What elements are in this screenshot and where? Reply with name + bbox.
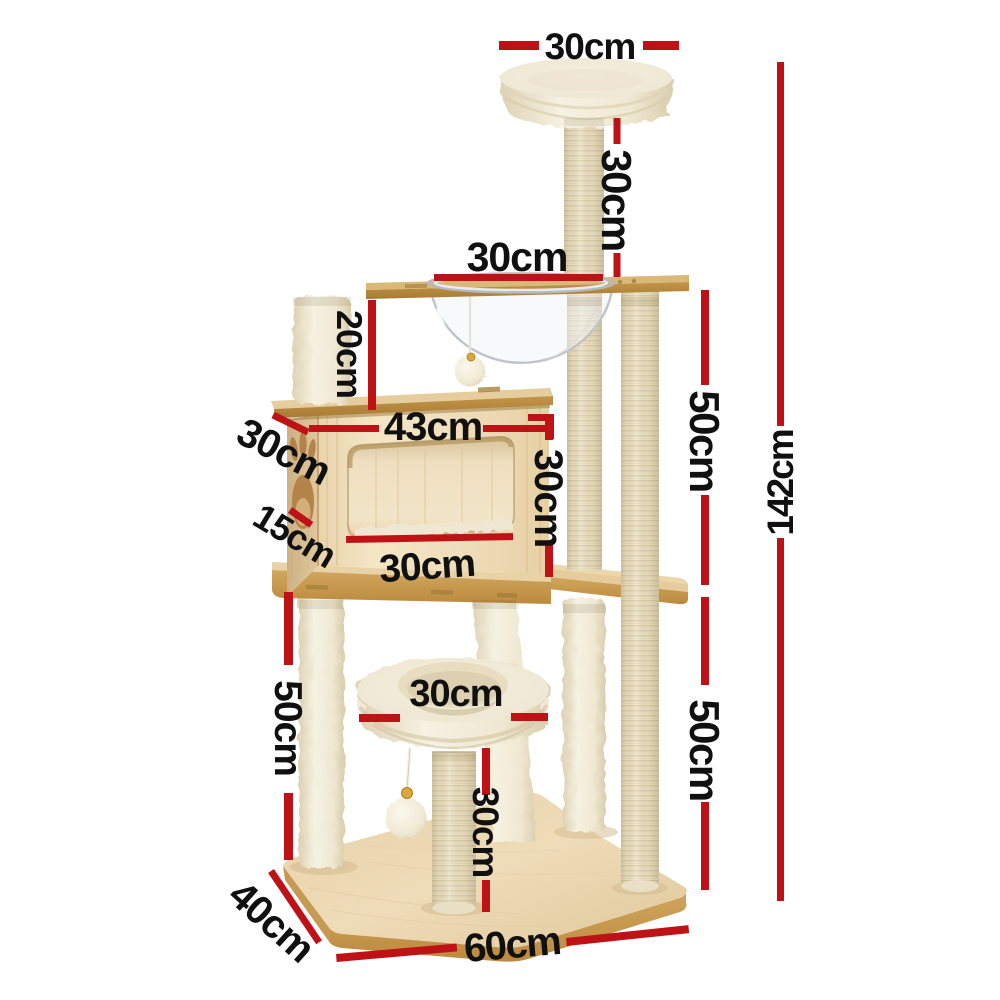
svg-text:142cm: 142cm	[760, 430, 801, 535]
svg-text:30cm: 30cm	[378, 542, 477, 592]
svg-text:30cm: 30cm	[593, 149, 640, 250]
svg-text:43cm: 43cm	[384, 405, 482, 449]
svg-text:30cm: 30cm	[409, 673, 502, 715]
svg-text:50cm: 50cm	[681, 390, 728, 491]
svg-text:20cm: 20cm	[329, 310, 370, 398]
svg-text:30cm: 30cm	[526, 449, 570, 547]
svg-text:30cm: 30cm	[465, 787, 506, 878]
svg-text:50cm: 50cm	[681, 699, 728, 800]
svg-text:60cm: 60cm	[462, 919, 562, 971]
svg-text:50cm: 50cm	[266, 680, 309, 776]
svg-text:30cm: 30cm	[467, 234, 568, 280]
svg-text:30cm: 30cm	[545, 26, 636, 67]
